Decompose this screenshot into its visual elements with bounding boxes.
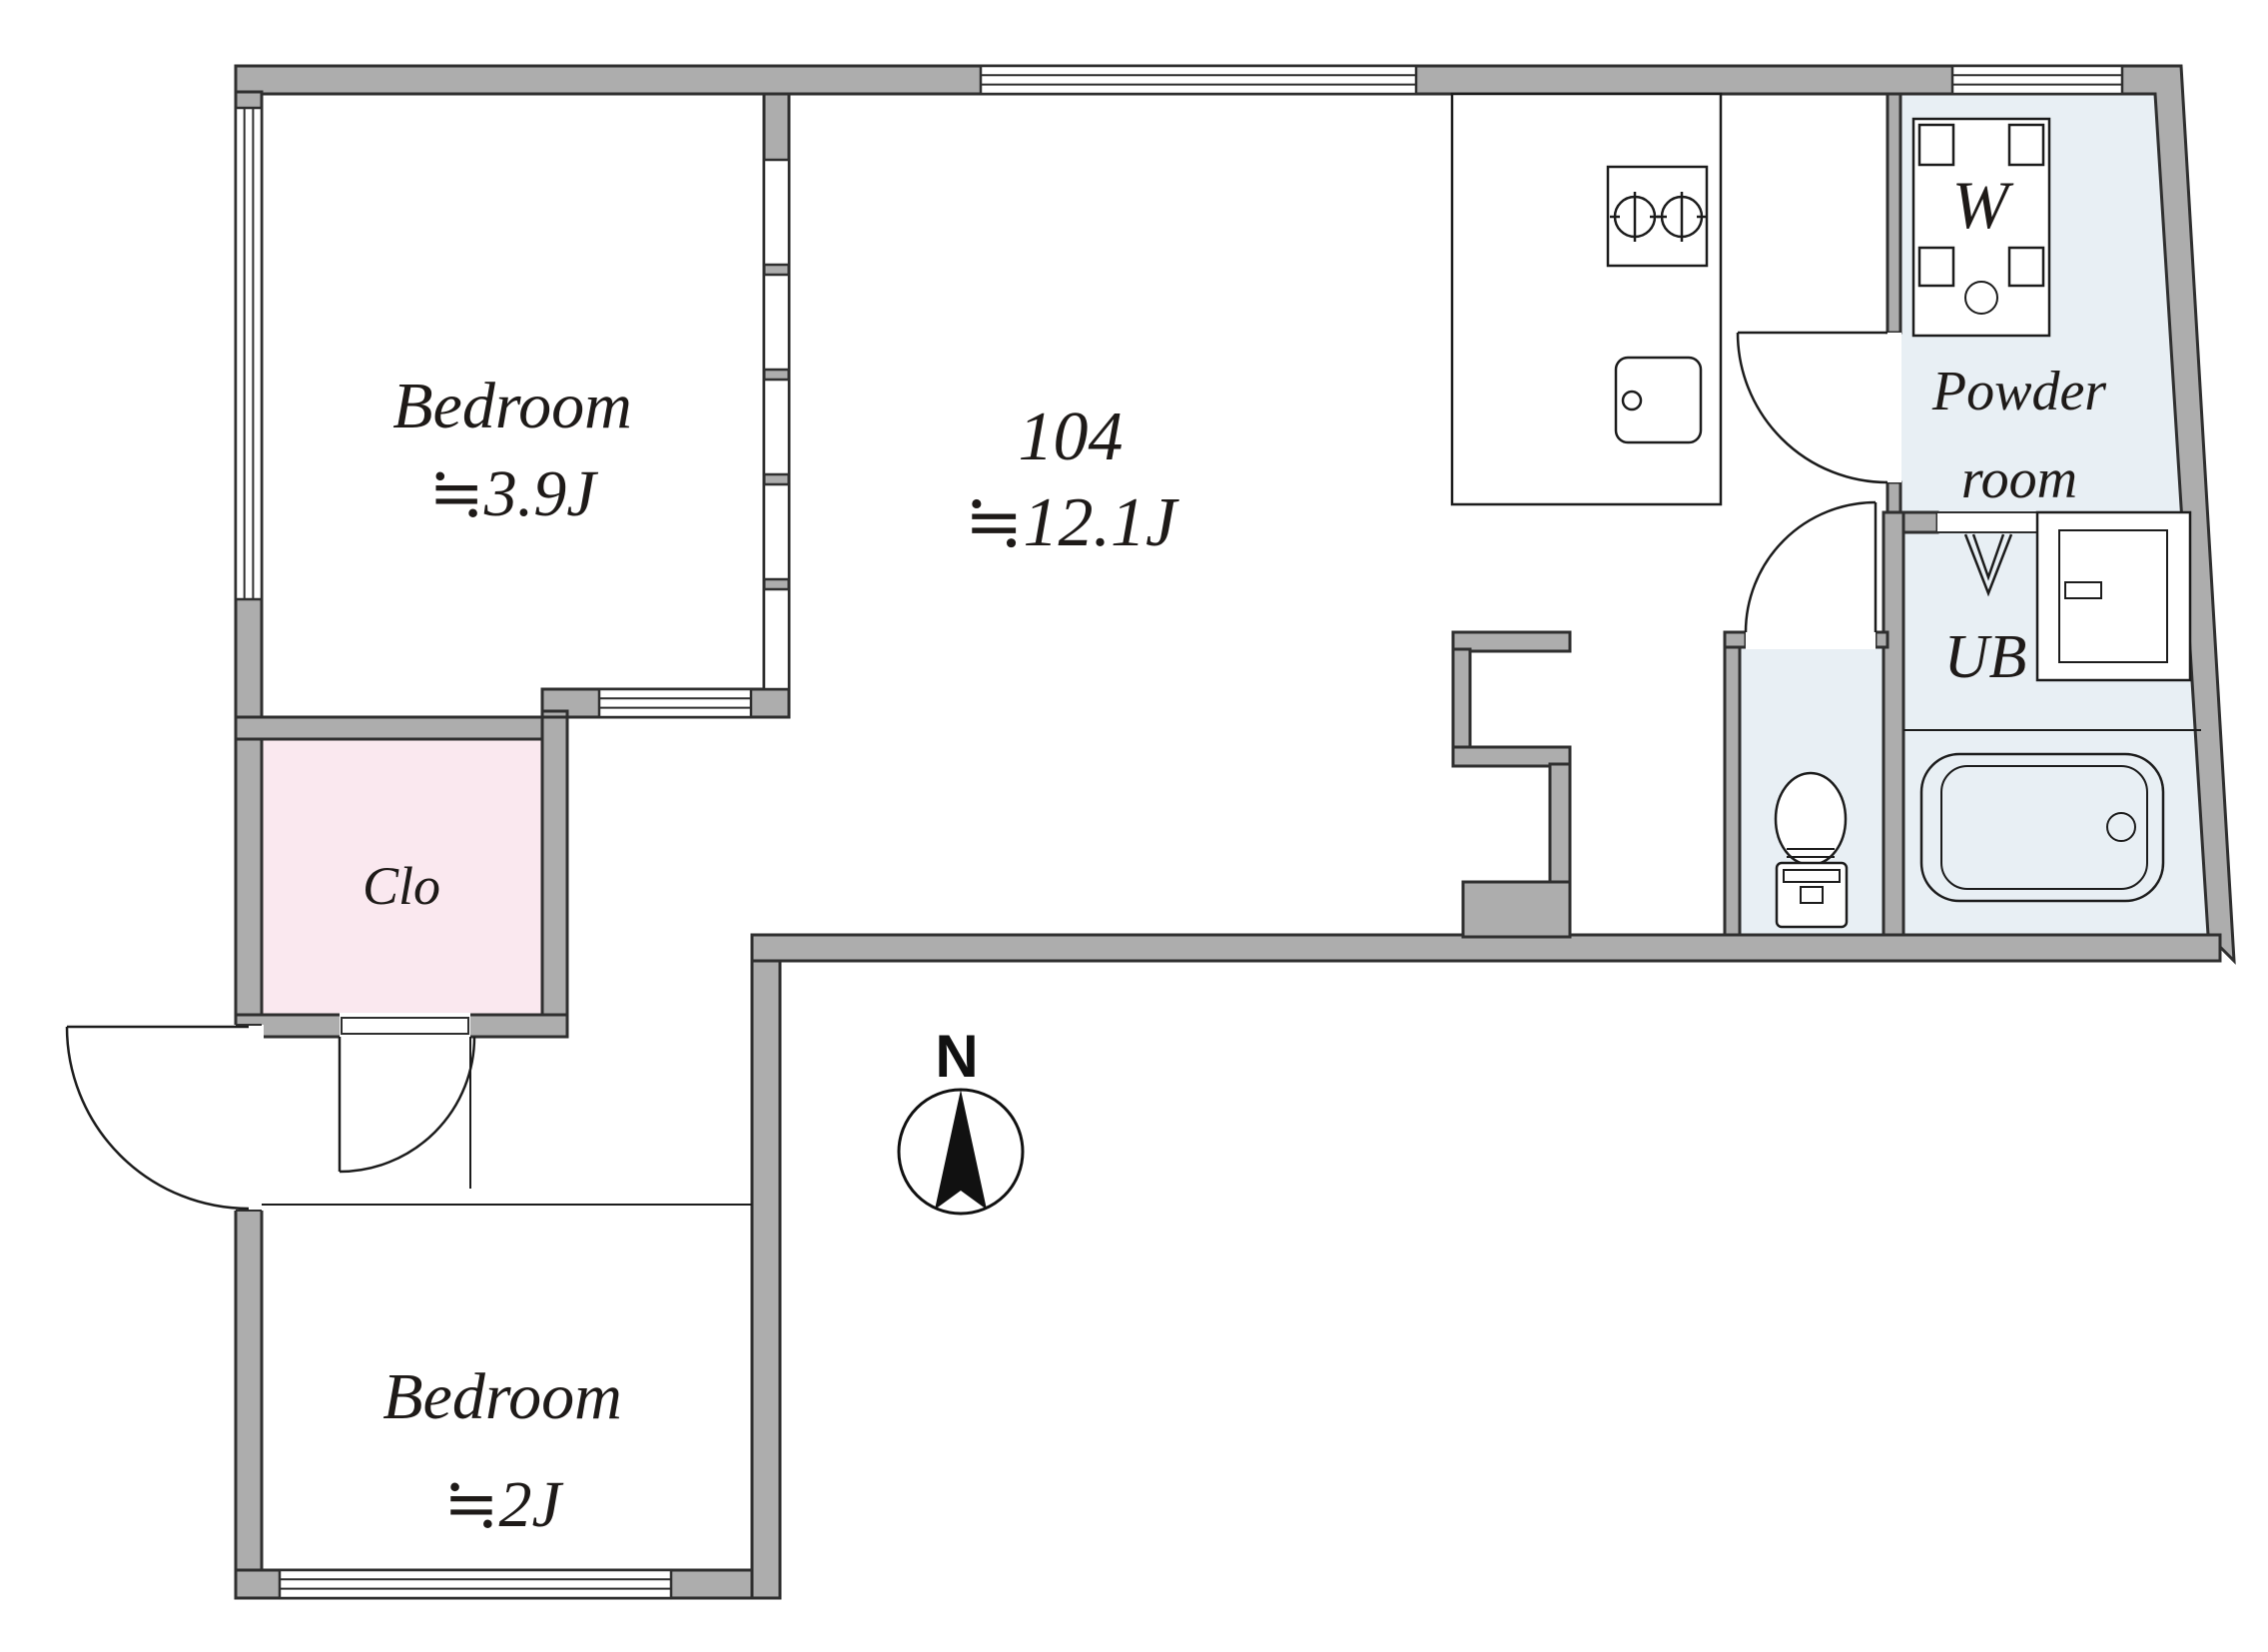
floor-plan-drawing: N Bedroom ≒3.9J 104 ≒12.1J Bedroom ≒2J C… bbox=[0, 0, 2268, 1652]
bedroom1-sliding-panels bbox=[764, 160, 789, 689]
toilet-left-wall bbox=[1725, 632, 1740, 935]
sliding-panel-1 bbox=[764, 160, 789, 265]
kitchen bbox=[1452, 94, 1721, 504]
bedroom1-area-label: ≒3.9J bbox=[428, 457, 598, 530]
sliding-panel-3 bbox=[764, 380, 789, 474]
main-room-area-label: ≒12.1J bbox=[965, 484, 1179, 561]
sliding-panel-5 bbox=[764, 589, 789, 689]
main-bottom-wall bbox=[752, 935, 2220, 961]
unit-bath-label: UB bbox=[1944, 623, 2027, 691]
closet-top-wall bbox=[236, 717, 567, 739]
window-top-powder bbox=[1952, 66, 2122, 94]
window-left-bedroom1 bbox=[236, 108, 262, 599]
washer-label: W bbox=[1952, 167, 2014, 243]
toilet-top-wall-right bbox=[1876, 632, 1888, 647]
powder-door-opening bbox=[1887, 333, 1901, 482]
closet-sliding-panel bbox=[342, 1018, 468, 1034]
niche-base-block bbox=[1463, 882, 1570, 937]
powder-room-label-line2: room bbox=[1961, 448, 2077, 510]
vanity-cabinet-icon bbox=[2037, 512, 2190, 680]
floor-plan-page: N Bedroom ≒3.9J 104 ≒12.1J Bedroom ≒2J C… bbox=[0, 0, 2268, 1652]
ub-door-opening bbox=[1937, 512, 2039, 532]
sliding-panel-2 bbox=[764, 275, 789, 370]
powder-left-wall-upper bbox=[1888, 94, 1900, 333]
stove-icon bbox=[1608, 167, 1707, 266]
closet-label: Clo bbox=[363, 856, 440, 916]
kitchen-sink-icon bbox=[1616, 358, 1701, 442]
toilet-icon bbox=[1776, 773, 1847, 927]
toilet-top-wall-left bbox=[1725, 632, 1746, 647]
closet-opening bbox=[340, 1013, 470, 1039]
toilet-door-opening bbox=[1746, 630, 1876, 649]
main-room-number-label: 104 bbox=[1019, 399, 1124, 475]
niche-right-wall bbox=[1550, 764, 1570, 884]
sliding-panel-4 bbox=[764, 484, 789, 579]
bedroom2-area-label: ≒2J bbox=[443, 1468, 563, 1541]
bedroom2-right-wall bbox=[752, 935, 780, 1598]
window-bedroom1-bottom bbox=[599, 689, 751, 717]
window-top-main bbox=[981, 66, 1416, 94]
bedroom1-name-label: Bedroom bbox=[392, 370, 632, 442]
bedroom2-name-label: Bedroom bbox=[382, 1360, 622, 1433]
ub-left-wall bbox=[1884, 512, 1903, 935]
window-bedroom2-bottom bbox=[280, 1570, 671, 1598]
compass-north-label: N bbox=[935, 1023, 978, 1090]
closet-right-wall bbox=[542, 717, 567, 1037]
powder-room-label-line1: Powder bbox=[1931, 361, 2106, 422]
powder-left-wall-lower bbox=[1888, 482, 1900, 514]
entrance-opening bbox=[234, 1025, 264, 1211]
